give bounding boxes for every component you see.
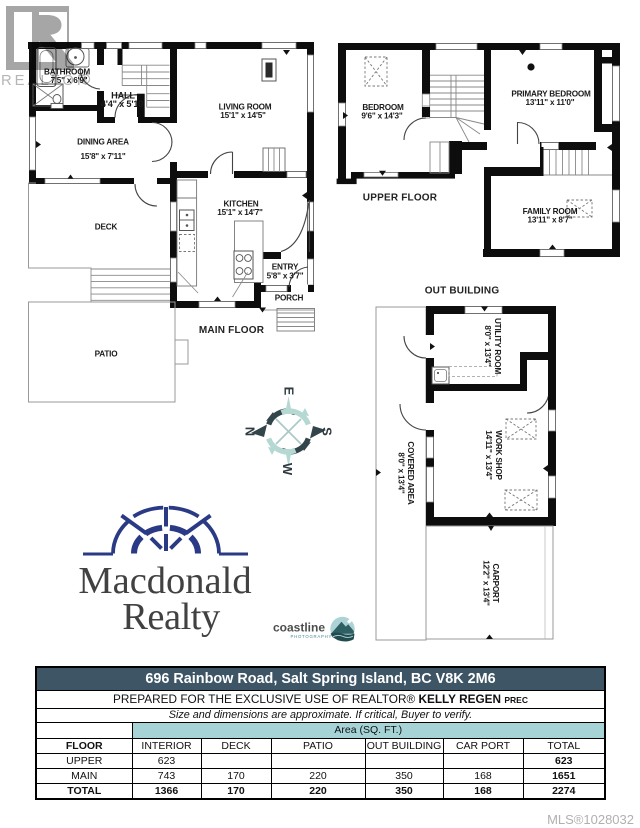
svg-text:14'11" x 13'4": 14'11" x 13'4" (484, 430, 493, 480)
svg-text:15'8" x 7'11": 15'8" x 7'11" (80, 152, 125, 161)
svg-text:coastline: coastline (273, 621, 325, 635)
svg-text:Realty: Realty (122, 596, 221, 638)
svg-text:UPPER FLOOR: UPPER FLOOR (363, 193, 438, 204)
svg-text:COVERED AREA: COVERED AREA (406, 441, 415, 505)
svg-text:13'11" x 11'0": 13'11" x 11'0" (526, 98, 575, 107)
svg-text:UTILITY ROOM: UTILITY ROOM (493, 318, 502, 375)
svg-text:PORCH: PORCH (275, 294, 304, 303)
svg-text:12'2" x 13'4": 12'2" x 13'4" (482, 560, 491, 606)
svg-text:CARPORT: CARPORT (491, 563, 500, 602)
svg-text:DECK: DECK (95, 223, 118, 232)
svg-text:13'11" x 8'7": 13'11" x 8'7" (527, 216, 572, 225)
svg-text:15'1" x 14'7": 15'1" x 14'7" (217, 208, 263, 217)
svg-text:MAIN FLOOR: MAIN FLOOR (199, 325, 265, 336)
svg-text:9'6" x 14'3": 9'6" x 14'3" (361, 112, 402, 121)
svg-text:5'8" x 3'7": 5'8" x 3'7" (267, 272, 304, 281)
svg-text:WORK SHOP: WORK SHOP (494, 430, 503, 480)
svg-text:R: R (83, 77, 88, 84)
svg-text:PHOTOGRAPHY: PHOTOGRAPHY (291, 634, 333, 639)
svg-text:15'1" x 14'5": 15'1" x 14'5" (220, 111, 266, 120)
svg-text:N: N (243, 427, 258, 436)
svg-text:8'0" x 13'4": 8'0" x 13'4" (397, 452, 406, 493)
svg-text:ENTRY: ENTRY (272, 263, 299, 272)
svg-text:W: W (280, 463, 295, 476)
svg-text:PATIO: PATIO (95, 350, 119, 359)
svg-text:E: E (282, 387, 297, 396)
svg-text:OUT BUILDING: OUT BUILDING (425, 286, 500, 297)
svg-text:REALTOR: REALTOR (1, 73, 91, 89)
svg-text:DINING AREA: DINING AREA (77, 138, 129, 147)
svg-text:8'0" x 13'4": 8'0" x 13'4" (483, 325, 492, 366)
svg-text:S: S (320, 427, 335, 436)
